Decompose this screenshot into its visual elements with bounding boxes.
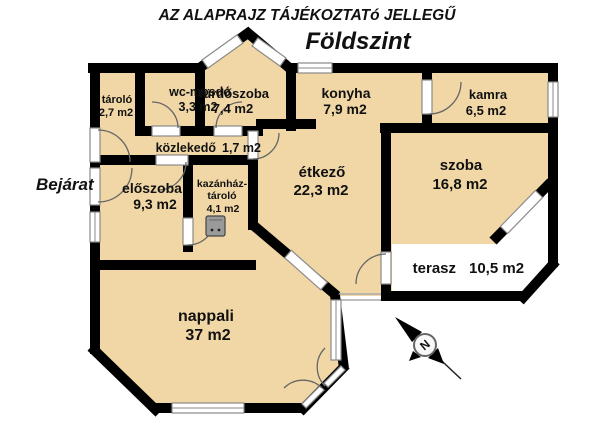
hall-door [156, 155, 188, 165]
area-furdoszoba: 7,4 m2 [213, 101, 253, 116]
wc-door [152, 126, 180, 136]
area-nappali: 37 m2 [185, 327, 230, 344]
boiler-icon [206, 216, 225, 236]
label-konyha: konyha [321, 85, 370, 101]
pantry-door [422, 80, 432, 114]
label-tarolo: tároló [102, 94, 133, 106]
label-furdoszoba: fürdőszoba [199, 86, 270, 101]
label-eloszoba: előszoba [122, 180, 182, 196]
area-eloszoba: 9,3 m2 [133, 196, 177, 212]
area-szoba: 16,8 m2 [432, 176, 487, 193]
terrace-door [381, 252, 391, 284]
floor-plan-page: AZ ALAPRAJZ TÁJÉKOZTATó JELLEGŰ Földszin… [0, 0, 600, 425]
label-kazanhaz-1: kazánház- [197, 178, 248, 190]
label-nappali: nappali [178, 308, 234, 325]
area-tarolo: 2,7 m2 [99, 107, 133, 119]
label-etkezo: étkező [299, 164, 346, 181]
area-konyha: 7,9 m2 [323, 101, 367, 117]
area-terasz: 10,5 m2 [469, 260, 524, 277]
floor-plan-svg: AZ ALAPRAJZ TÁJÉKOZTATó JELLEGŰ Földszin… [0, 0, 600, 425]
boiler-room-door [183, 218, 193, 245]
label-kazanhaz-2: tároló [207, 190, 236, 202]
plan-disclaimer-title: AZ ALAPRAJZ TÁJÉKOZTATó JELLEGŰ [158, 6, 457, 24]
label-kozlekedo: közlekedő [156, 141, 217, 155]
floor-title: Földszint [305, 28, 411, 55]
compass-icon: N [395, 317, 461, 379]
label-szoba: szoba [440, 157, 483, 174]
label-terasz: terasz [413, 260, 456, 277]
area-kazanhaz: 4,1 m2 [207, 203, 240, 215]
area-wc-mosdo: 3,3 m2 [179, 100, 218, 114]
entrance-label: Bejárat [36, 175, 95, 194]
label-kamra: kamra [469, 87, 508, 102]
bathroom-door [214, 126, 242, 136]
area-kamra: 6,5 m2 [466, 103, 506, 118]
area-kozlekedo: 1,7 m2 [222, 141, 261, 155]
area-etkezo: 22,3 m2 [293, 182, 348, 199]
storage-entry-door [90, 128, 100, 162]
